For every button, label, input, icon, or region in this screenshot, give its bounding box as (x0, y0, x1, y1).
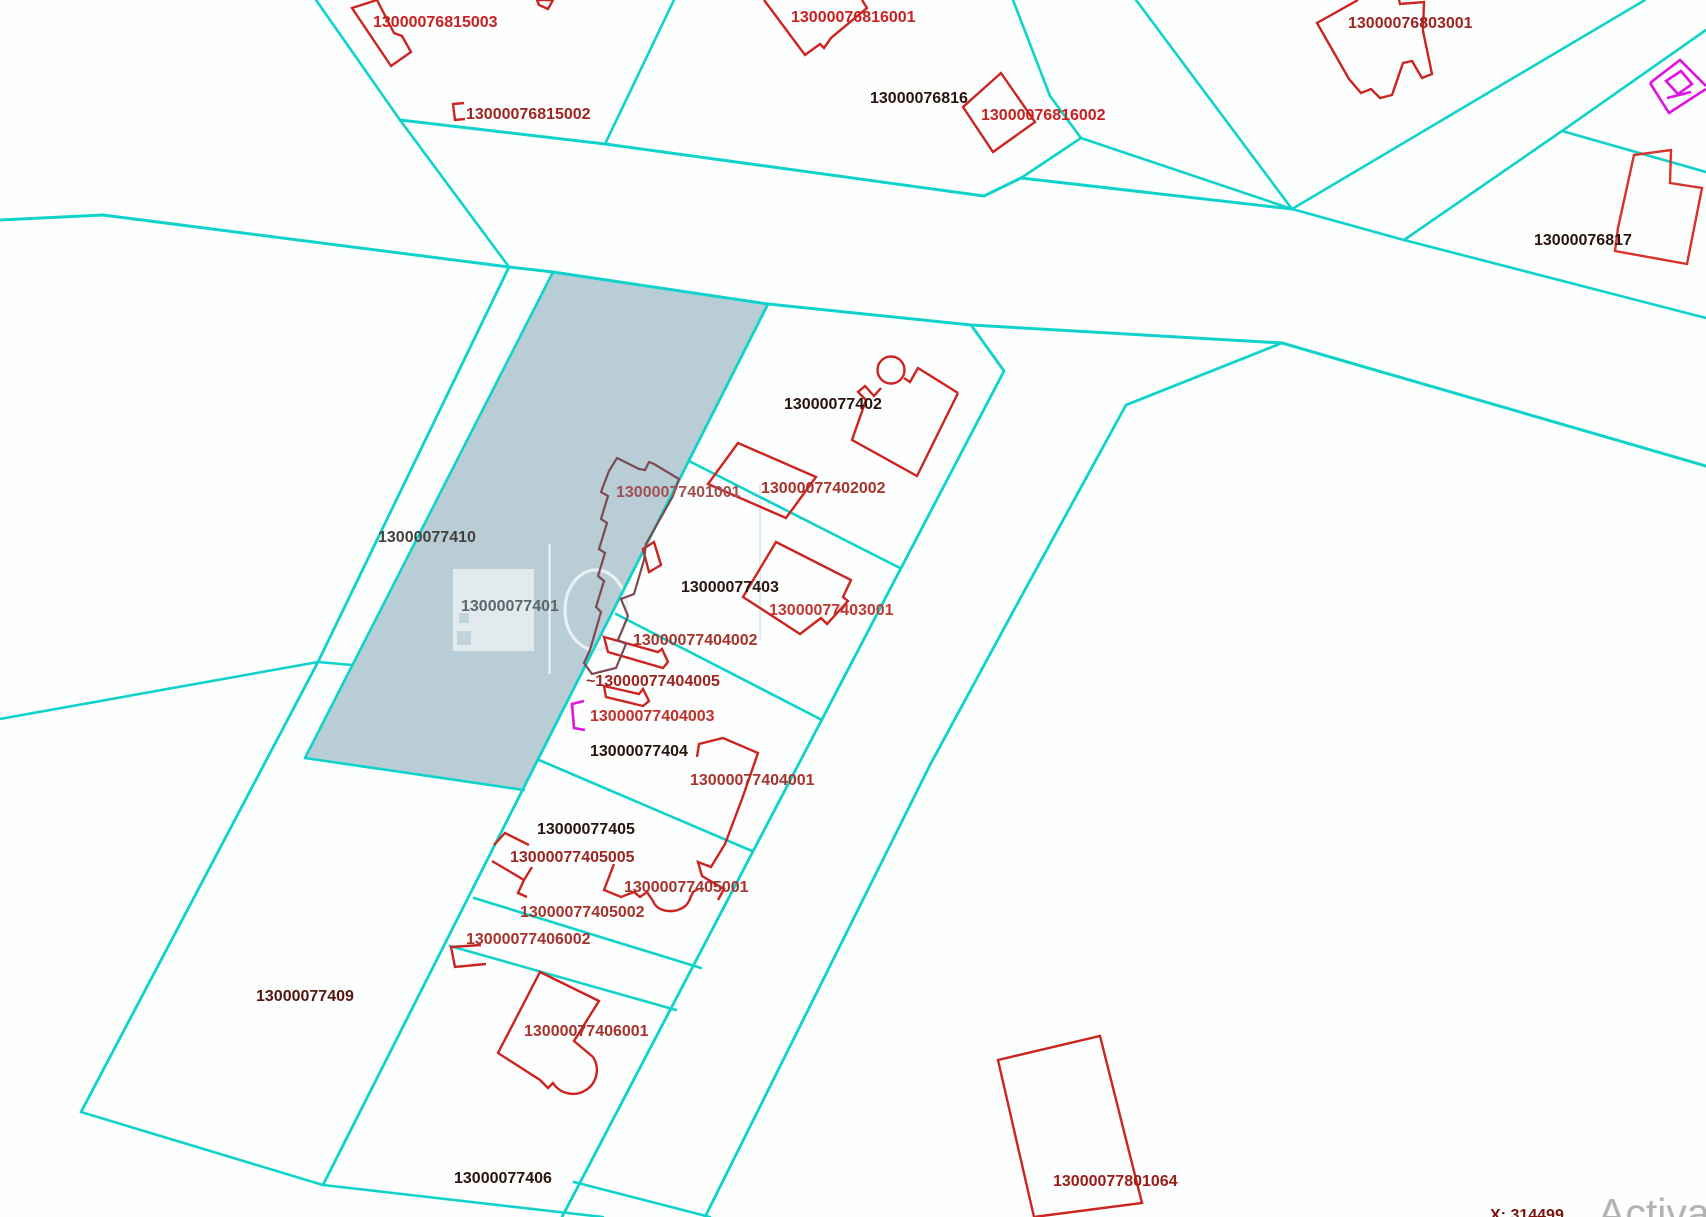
svg-text:13000077403: 13000077403 (681, 579, 779, 596)
svg-text:13000077401001: 13000077401001 (616, 484, 741, 501)
svg-text:Activa: Activa (1598, 1190, 1706, 1217)
svg-text:13000077405002: 13000077405002 (520, 904, 645, 921)
svg-text:13000076817: 13000076817 (1534, 232, 1632, 249)
svg-text:13000076815003: 13000076815003 (373, 14, 498, 31)
svg-text:13000076816: 13000076816 (870, 90, 968, 107)
svg-text:13000077403001: 13000077403001 (769, 602, 894, 619)
svg-text:~13000077404005: ~13000077404005 (586, 673, 720, 690)
svg-text:13000077401: 13000077401 (461, 598, 559, 615)
svg-text:13000077404002: 13000077404002 (633, 632, 758, 649)
svg-text:13000077410: 13000077410 (378, 529, 476, 546)
svg-text:13000077406: 13000077406 (454, 1170, 552, 1187)
svg-text:13000077406002: 13000077406002 (466, 931, 591, 948)
svg-text:13000076816002: 13000076816002 (981, 107, 1106, 124)
svg-text:X: 314499: X: 314499 (1490, 1207, 1564, 1217)
svg-text:13000077405005: 13000077405005 (510, 849, 635, 866)
svg-text:13000077404001: 13000077404001 (690, 772, 815, 789)
svg-text:13000077405: 13000077405 (537, 821, 635, 838)
svg-text:13000076815002: 13000076815002 (466, 106, 591, 123)
svg-text:13000077402002: 13000077402002 (761, 480, 886, 497)
svg-text:13000077801064: 13000077801064 (1053, 1173, 1178, 1190)
svg-text:13000076803001: 13000076803001 (1348, 15, 1473, 32)
svg-text:13000077402: 13000077402 (784, 396, 882, 413)
svg-text:13000077404003: 13000077404003 (590, 708, 715, 725)
svg-text:13000077406001: 13000077406001 (524, 1023, 649, 1040)
svg-text:13000076816001: 13000076816001 (791, 9, 916, 26)
svg-text:13000077409: 13000077409 (256, 988, 354, 1005)
svg-text:13000077405001: 13000077405001 (624, 879, 749, 896)
svg-text:13000077404: 13000077404 (590, 743, 688, 760)
